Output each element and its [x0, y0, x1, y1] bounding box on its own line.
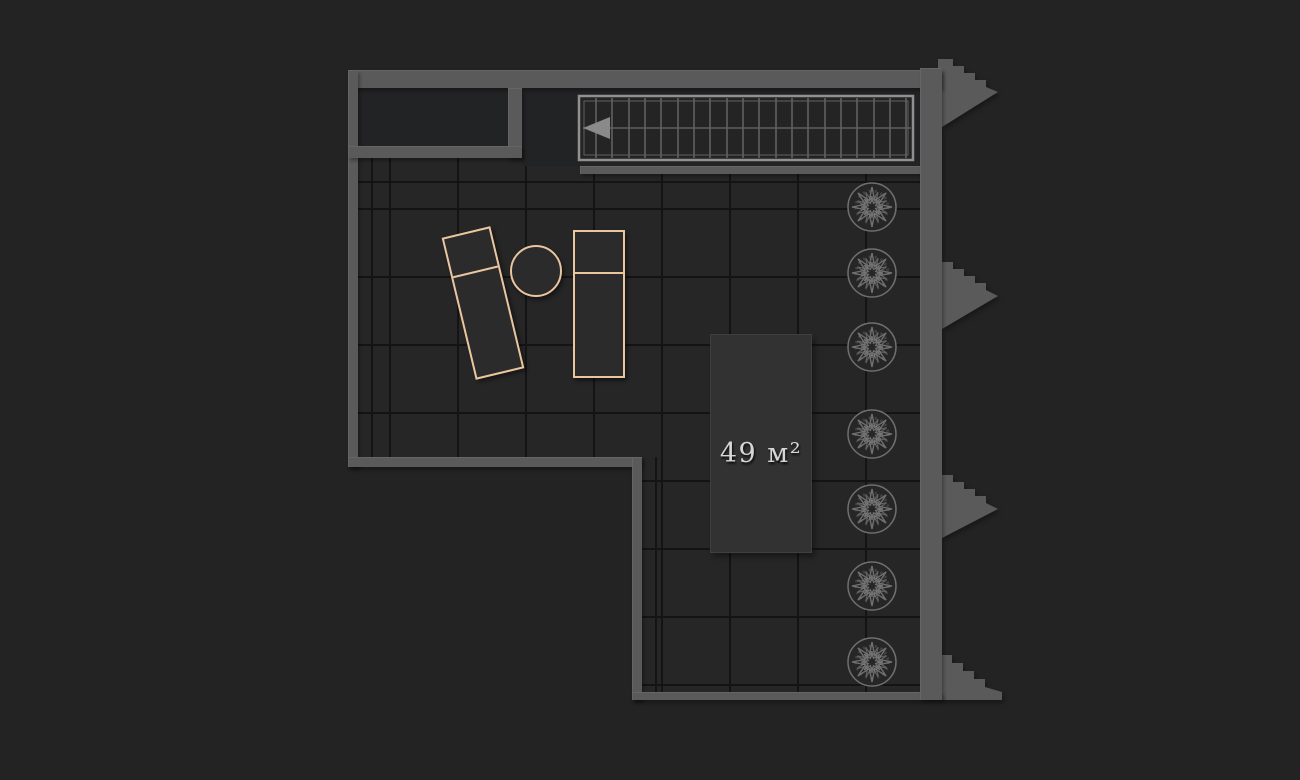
wall-top — [348, 70, 942, 88]
side-table — [510, 245, 562, 297]
tree-icon — [848, 485, 896, 533]
lounge-chair-headrest — [575, 232, 623, 274]
wall-planter-bottom — [348, 146, 522, 158]
wall-stair-edge — [580, 166, 920, 174]
tree-icon — [848, 183, 896, 231]
exterior-steps-top — [938, 59, 998, 127]
tree-icon — [848, 562, 896, 610]
exterior-steps-bottom — [942, 655, 1002, 700]
exterior-steps-lower-middle — [942, 475, 998, 538]
floor-plan: 49 м² — [0, 0, 1300, 780]
lounge-chair-straight — [573, 230, 625, 378]
tree-icon — [848, 410, 896, 458]
exterior-steps-upper-middle — [942, 262, 998, 329]
plan-drawing-layer — [0, 0, 1300, 780]
tree-row — [848, 183, 896, 686]
tree-icon — [848, 249, 896, 297]
tree-icon — [848, 323, 896, 371]
tree-icon — [848, 638, 896, 686]
wall-bottom-left — [348, 457, 642, 467]
wall-bottom — [632, 692, 942, 700]
lounge-chair-headrest — [444, 229, 498, 279]
wall-middle-vertical — [632, 457, 642, 700]
wall-right — [920, 68, 942, 700]
staircase — [579, 96, 913, 160]
wall-left — [348, 70, 358, 467]
